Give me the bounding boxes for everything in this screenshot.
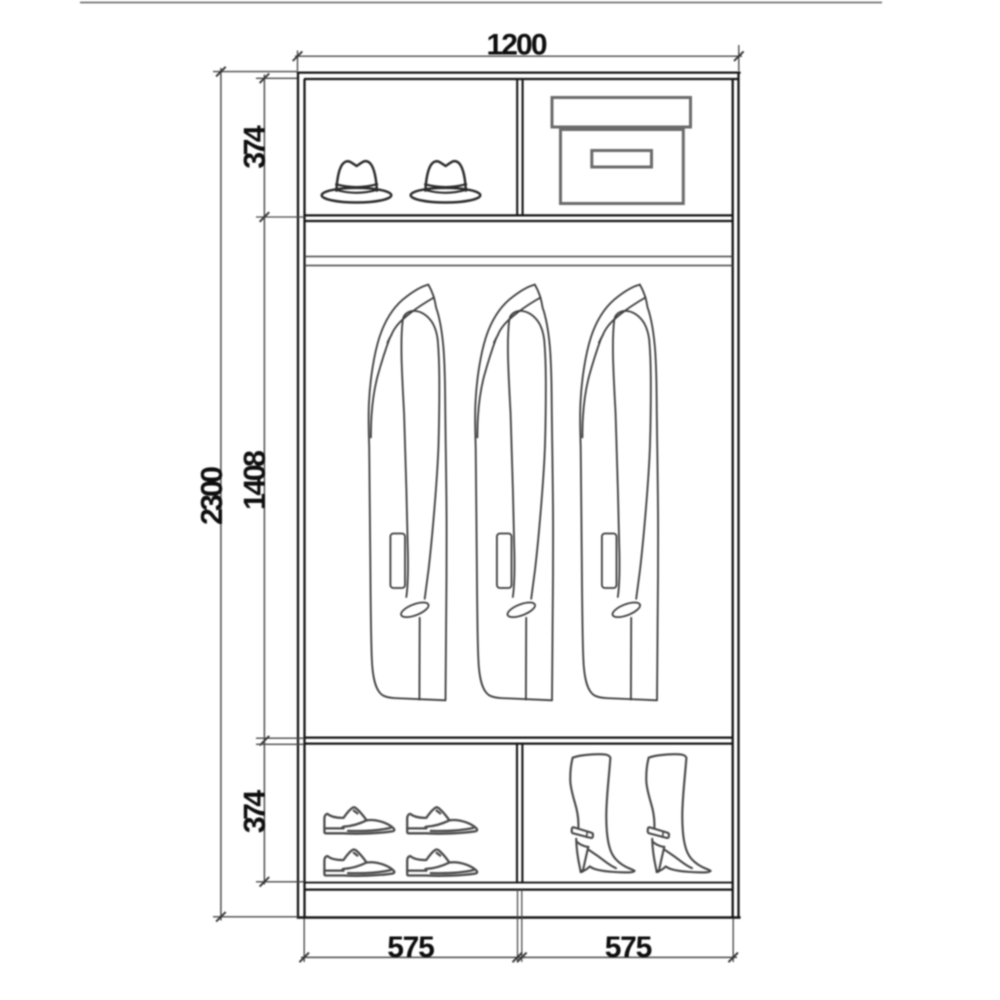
svg-text:2300: 2300 xyxy=(195,466,229,525)
svg-text:1408: 1408 xyxy=(238,450,272,510)
svg-text:374: 374 xyxy=(238,125,272,169)
svg-text:575: 575 xyxy=(387,931,435,964)
svg-text:374: 374 xyxy=(238,790,272,834)
svg-text:575: 575 xyxy=(605,931,653,964)
svg-text:1200: 1200 xyxy=(487,29,548,62)
